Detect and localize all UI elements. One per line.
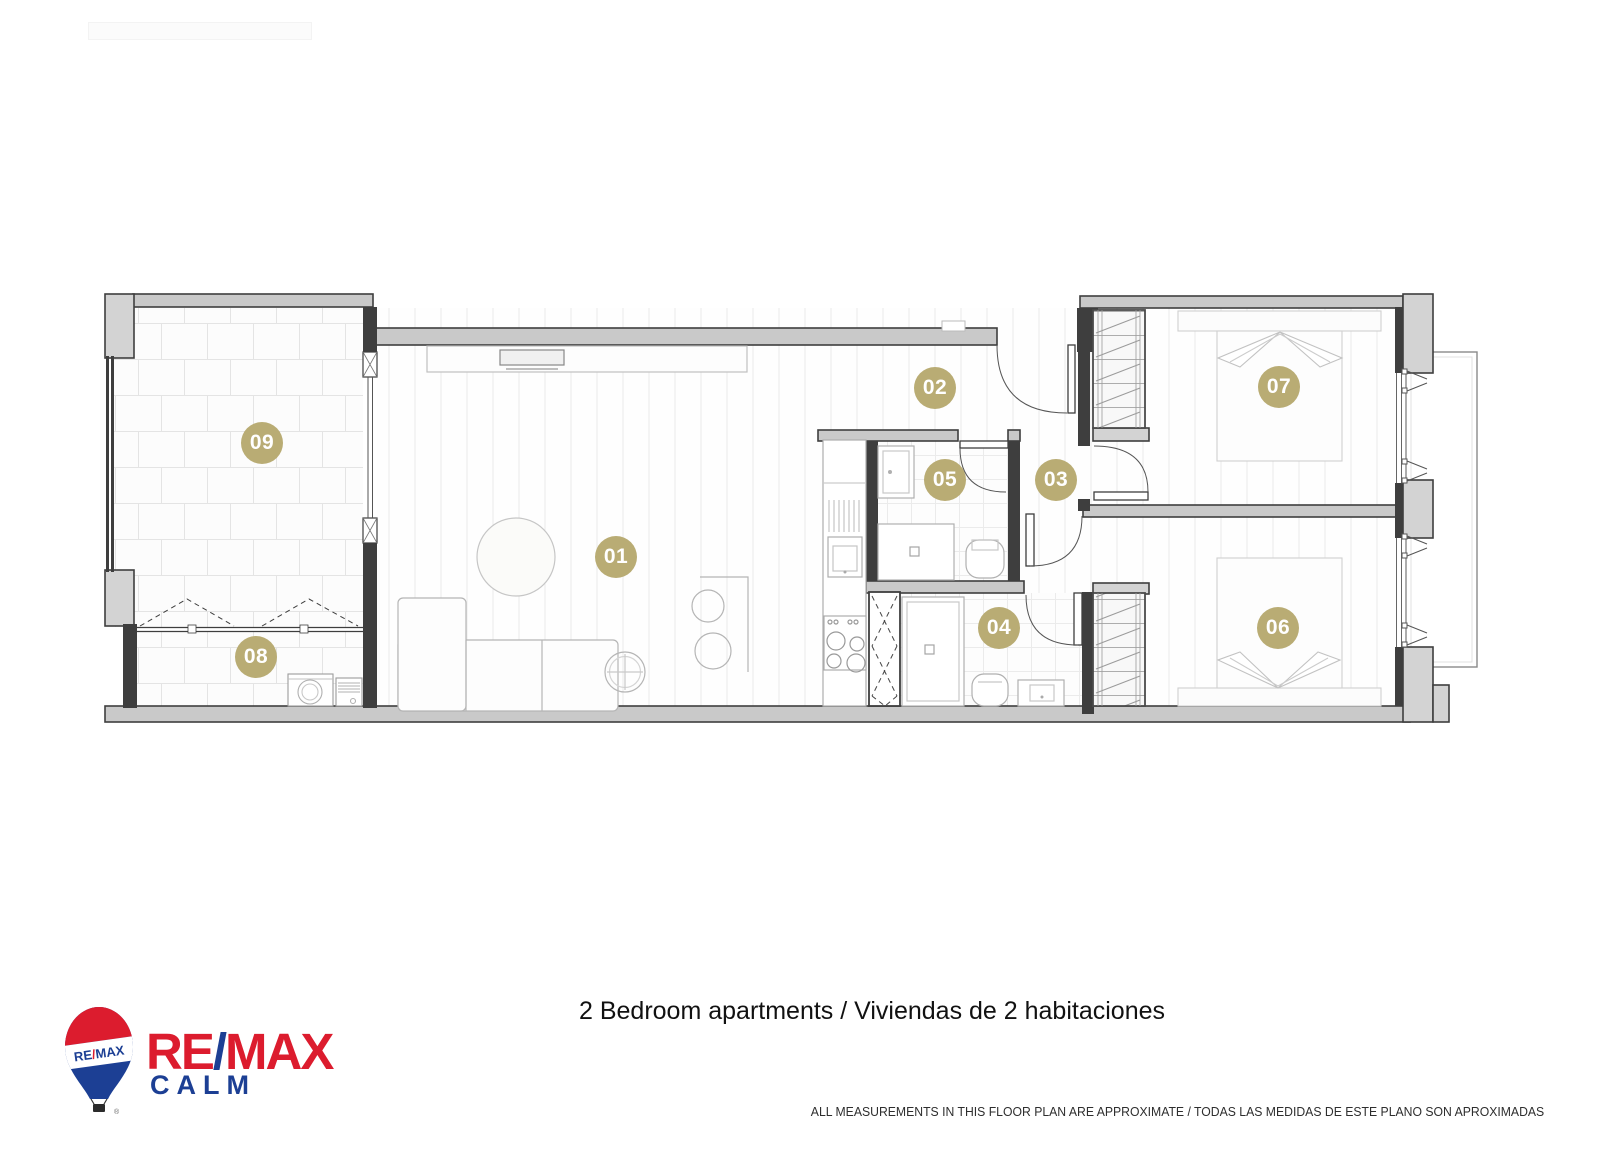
media-unit: [427, 346, 747, 372]
column: [1403, 647, 1433, 722]
bath1-top-wall: [818, 430, 958, 441]
room-marker-04: 04: [978, 607, 1020, 649]
room-marker-09: 09: [241, 422, 283, 464]
room-marker-06: 06: [1257, 607, 1299, 649]
shower-tray: [902, 597, 964, 706]
toilet: [972, 674, 1008, 706]
laundry-appliances: [288, 674, 362, 706]
dining-table: [477, 518, 555, 596]
dish-rack: [829, 500, 859, 532]
room-marker-07: 07: [1258, 366, 1300, 408]
column: [1403, 294, 1433, 373]
column-step: [1433, 685, 1449, 722]
office-name: CALM: [150, 1070, 256, 1101]
plan-title: 2 Bedroom apartments / Viviendas de 2 ha…: [579, 997, 1165, 1026]
wardrobe-nib: [1093, 428, 1149, 441]
shower-tray: [878, 524, 954, 580]
terrace-floor: [113, 308, 363, 627]
bedrooms-top-wall: [1080, 296, 1403, 308]
living-top-wall: [368, 328, 997, 345]
room-marker-05: 05: [924, 459, 966, 501]
wall-notch: [942, 321, 965, 331]
terrace-glazing: [363, 352, 377, 543]
room-marker-03: 03: [1035, 459, 1077, 501]
column: [105, 294, 134, 358]
wardrobe: [1093, 310, 1145, 428]
bottom-wall: [105, 706, 1410, 722]
remax-logo: RE/MAX ® RE/MAX CALM: [58, 1000, 438, 1120]
side-table: [605, 652, 645, 692]
room-marker-08: 08: [235, 636, 277, 678]
disclaimer-text: ALL MEASUREMENTS IN THIS FLOOR PLAN ARE …: [811, 1104, 1544, 1119]
tv: [500, 350, 564, 365]
registered-mark: ®: [114, 1108, 120, 1116]
room-marker-01: 01: [595, 536, 637, 578]
wardrobe: [1093, 593, 1145, 706]
column: [1403, 480, 1433, 538]
column: [105, 570, 134, 626]
cooktop: [824, 616, 866, 672]
room-marker-02: 02: [914, 367, 956, 409]
floor-plan: [0, 0, 1600, 1153]
shaft: [869, 592, 900, 706]
remax-balloon-icon: RE/MAX ®: [58, 1005, 140, 1117]
balloon-basket: [93, 1104, 105, 1112]
bath1-top-stub: [1008, 430, 1020, 441]
bedroom-divider-wall: [1083, 505, 1403, 517]
terrace-top-wall: [133, 294, 373, 307]
sofa-chaise: [398, 598, 466, 711]
page: 01 02 03 04 05 06 07 08 09 RE/MAX: [0, 0, 1600, 1153]
washbasin: [1018, 680, 1064, 706]
